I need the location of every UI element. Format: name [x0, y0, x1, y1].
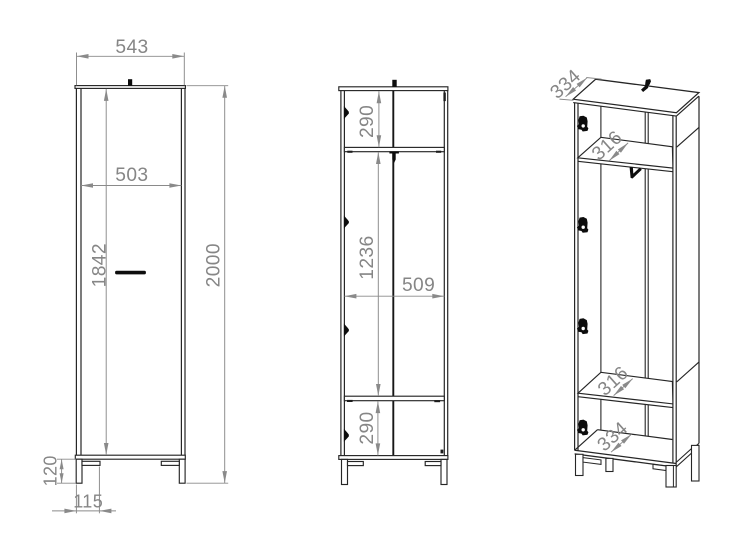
svg-text:543: 543 — [115, 37, 148, 58]
svg-text:120: 120 — [40, 455, 60, 486]
svg-text:115: 115 — [73, 492, 103, 512]
svg-text:2000: 2000 — [203, 243, 224, 287]
svg-text:1236: 1236 — [357, 235, 378, 279]
svg-text:1842: 1842 — [89, 243, 110, 287]
svg-text:509: 509 — [402, 275, 435, 296]
svg-text:290: 290 — [357, 411, 378, 444]
svg-text:503: 503 — [115, 165, 148, 186]
svg-text:290: 290 — [357, 105, 378, 138]
